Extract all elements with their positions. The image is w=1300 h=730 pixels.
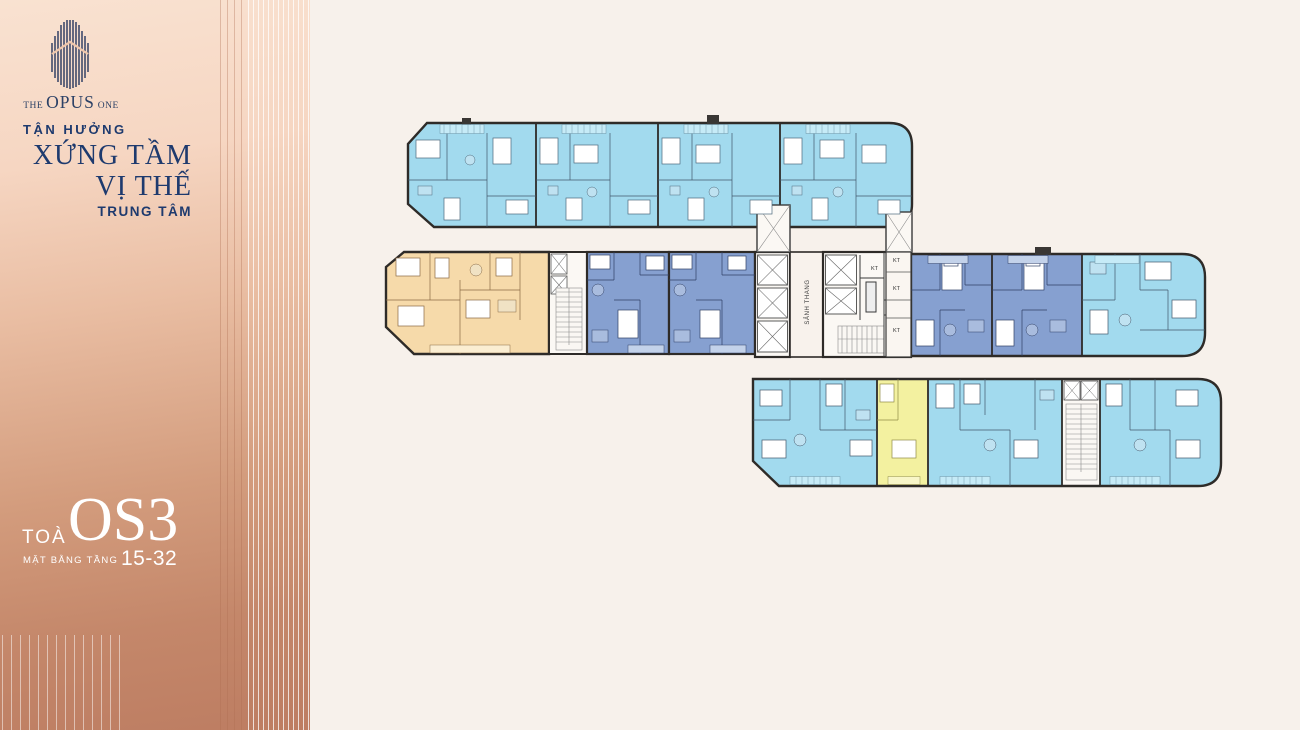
svg-text:KT: KT	[893, 286, 901, 292]
svg-text:KT: KT	[871, 266, 879, 272]
svg-text:KT: KT	[893, 328, 901, 334]
svg-text:SẢNH THANG: SẢNH THANG	[804, 279, 811, 324]
svg-text:KT: KT	[893, 258, 901, 264]
